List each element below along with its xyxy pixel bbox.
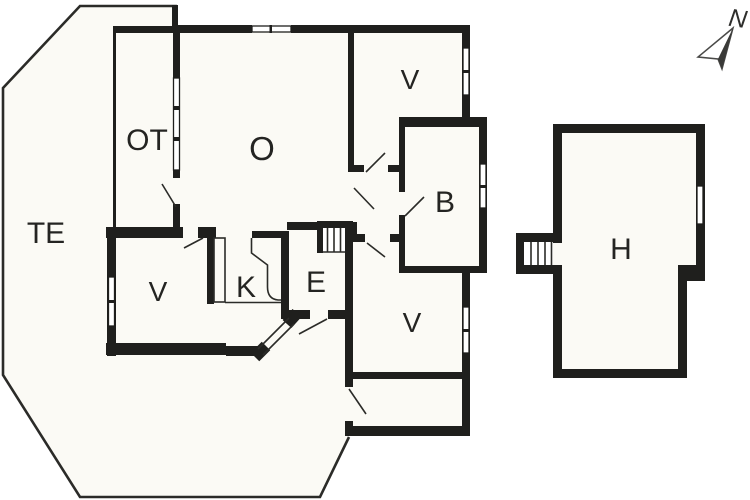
stairs-icon <box>323 228 345 252</box>
window-v-south <box>462 307 470 353</box>
room-label-k: K <box>236 271 256 304</box>
floor-plan-svg: TE OT O V B V K E V H N <box>0 0 750 500</box>
room-label-v-west: V <box>149 276 168 307</box>
window-ot-wall <box>173 78 180 170</box>
room-label-te: TE <box>27 217 65 250</box>
window-v-west <box>107 277 115 326</box>
room-label-v-north: V <box>401 64 420 95</box>
room-label-o: O <box>249 130 275 167</box>
entrance-steps-icon <box>524 242 553 265</box>
room-label-h: H <box>610 233 632 266</box>
window-v-north <box>462 48 470 95</box>
floor-plan: TE OT O V B V K E V H N <box>0 0 750 500</box>
room-label-e: E <box>306 266 326 299</box>
room-label-ot: OT <box>126 124 168 157</box>
outbuilding-window <box>697 186 703 224</box>
room-label-v-south: V <box>403 307 422 338</box>
north-compass: N <box>698 4 750 69</box>
window-north <box>252 25 291 33</box>
page: { "title": "Floor plan", "colors": { "wa… <box>0 0 750 500</box>
room-label-b: B <box>435 186 455 219</box>
north-arrow-icon <box>698 28 733 69</box>
window-b <box>479 164 487 208</box>
